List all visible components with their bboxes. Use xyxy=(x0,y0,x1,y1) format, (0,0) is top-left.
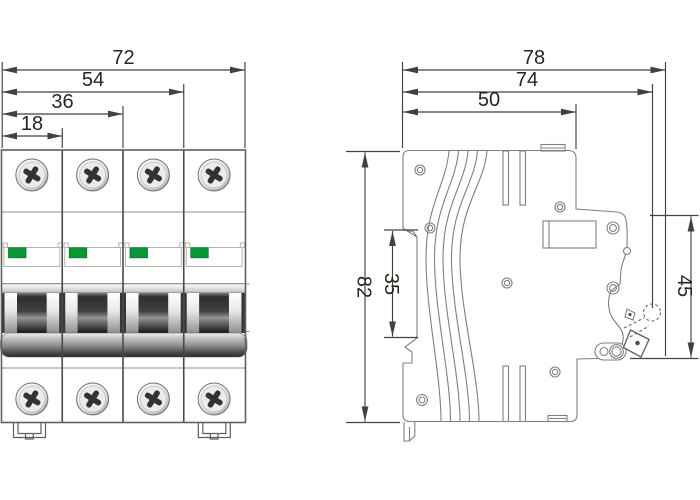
screw-head xyxy=(137,159,169,191)
screw-head xyxy=(77,383,109,415)
dim-label-height: 82 xyxy=(353,276,375,298)
dim-label-depth-to-handle: 74 xyxy=(516,69,538,91)
screw-head xyxy=(16,383,48,415)
din-rail-clip xyxy=(198,423,230,440)
dim-label-one-pole: 18 xyxy=(21,113,43,135)
dim-label-depth-total: 78 xyxy=(523,47,545,69)
breaker-body-side xyxy=(403,151,627,422)
dim-label-front-face: 45 xyxy=(673,275,695,297)
toggle-band xyxy=(1,284,250,357)
lockout-hole xyxy=(595,343,626,360)
toggle-lever xyxy=(624,304,661,357)
technical-drawing-canvas: 72 54 36 18 xyxy=(0,0,700,500)
dim-label-three-pole: 54 xyxy=(82,69,104,91)
breaker-dimension-drawing: 72 54 36 18 xyxy=(0,0,700,500)
din-clip-tab xyxy=(404,422,415,441)
screw-head xyxy=(198,383,230,415)
front-view: 72 54 36 18 xyxy=(1,47,250,439)
status-indicator xyxy=(9,248,27,258)
screw-head xyxy=(77,159,109,191)
dim-label-overall-width: 72 xyxy=(112,47,134,69)
side-view: 78 74 50 82 35 45 xyxy=(346,47,699,441)
din-rail-clip xyxy=(14,423,46,440)
dim-label-two-pole: 36 xyxy=(51,91,73,113)
status-indicator xyxy=(130,248,148,258)
dim-label-din-groove: 35 xyxy=(380,273,402,295)
screw-head xyxy=(137,383,169,415)
screw-head xyxy=(198,159,230,191)
status-indicator xyxy=(69,248,87,258)
dim-label-base-depth: 50 xyxy=(478,89,500,111)
screw-head xyxy=(16,159,48,191)
status-indicator xyxy=(191,248,209,258)
front-dimension-lines xyxy=(2,62,245,148)
